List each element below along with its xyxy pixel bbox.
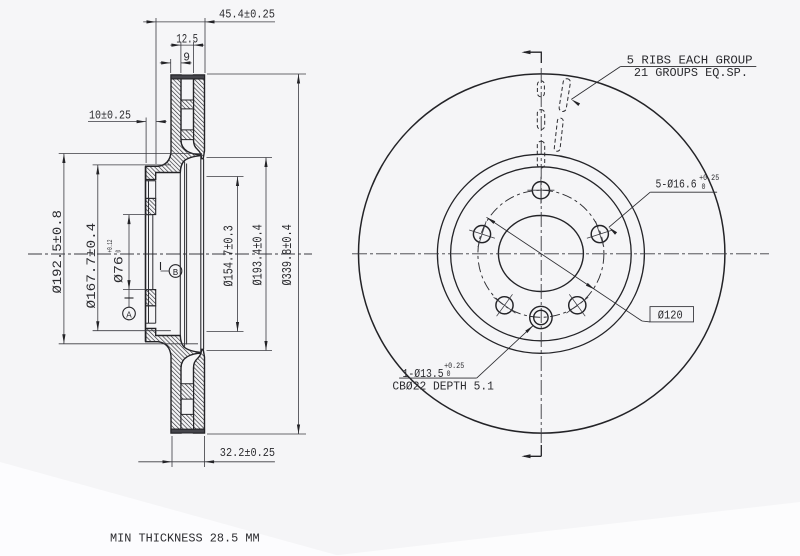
svg-text:0: 0 [114,250,122,253]
svg-text:B: B [173,267,179,278]
svg-text:Ø120: Ø120 [658,310,683,323]
svg-text:32.2±0.25: 32.2±0.25 [220,447,275,460]
svg-text:Ø76: Ø76 [112,256,127,283]
svg-text:Ø154.7±0.3: Ø154.7±0.3 [221,225,237,286]
svg-text:Ø193.4±0.4: Ø193.4±0.4 [250,224,266,285]
svg-text:5-Ø16.6: 5-Ø16.6 [656,178,697,191]
svg-text:12.5: 12.5 [176,33,198,47]
svg-text:21 GROUPS EQ.SP.: 21 GROUPS EQ.SP. [634,66,748,80]
svg-text:45.4±0.25: 45.4±0.25 [219,9,275,22]
svg-text:Ø192.5±0.8: Ø192.5±0.8 [51,210,65,293]
svg-text:+0.25: +0.25 [699,175,720,184]
svg-text:9: 9 [183,50,190,65]
svg-text:CBØ22 DEPTH 5.1: CBØ22 DEPTH 5.1 [392,379,493,394]
svg-text:10±0.25: 10±0.25 [89,110,131,123]
svg-text:Ø339.8±0.4: Ø339.8±0.4 [280,224,296,285]
svg-text:Ø167.7±0.4: Ø167.7±0.4 [86,223,100,309]
svg-text:0: 0 [702,184,706,193]
svg-text:MIN THICKNESS 28.5 MM: MIN THICKNESS 28.5 MM [110,531,260,545]
svg-text:+0.12: +0.12 [106,239,114,252]
svg-text:A: A [126,309,132,320]
